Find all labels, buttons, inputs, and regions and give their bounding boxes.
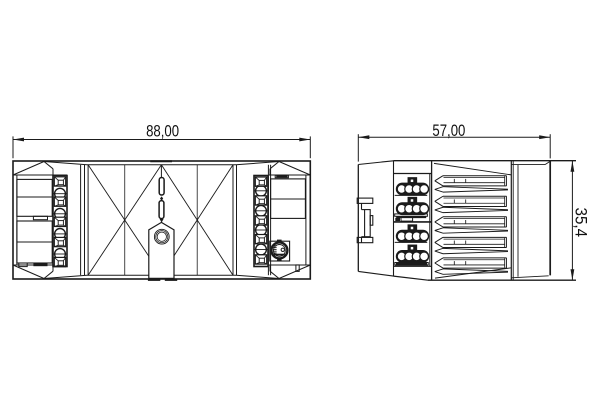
svg-text:35,4: 35,4 bbox=[571, 208, 590, 238]
svg-text:57,00: 57,00 bbox=[432, 121, 465, 140]
svg-text:88,00: 88,00 bbox=[146, 122, 179, 141]
